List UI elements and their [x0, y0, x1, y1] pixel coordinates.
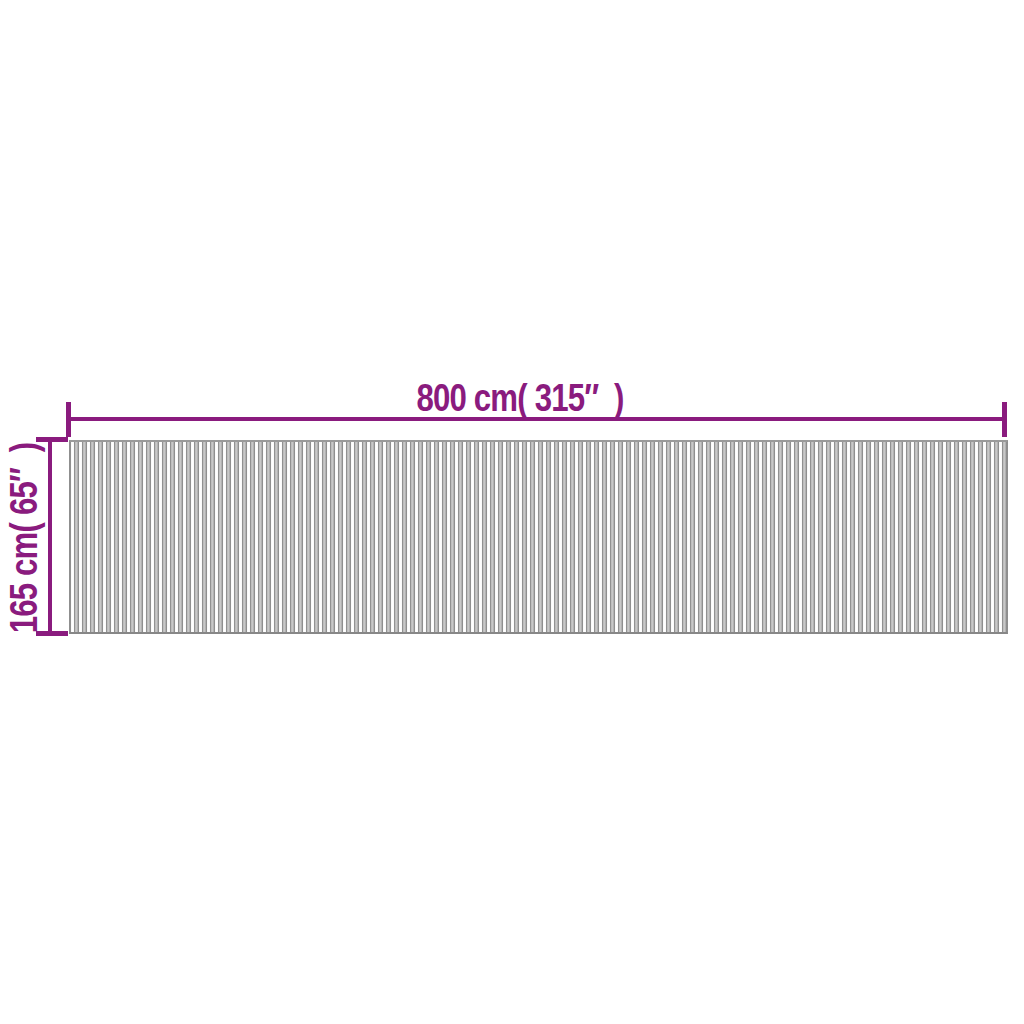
width-dimension-tick-right — [1002, 402, 1007, 437]
striped-mat-graphic — [69, 440, 1008, 634]
width-dimension-label: 800 cm( 315″ ) — [416, 379, 623, 417]
product-dimension-diagram: 800 cm( 315″ ) 165 cm( 65″ ) — [0, 0, 1024, 1024]
height-dimension-label: 165 cm( 65″ ) — [5, 443, 43, 634]
height-dimension-line — [48, 438, 52, 634]
width-dimension-tick-left — [66, 402, 71, 437]
height-dimension-tick-top — [36, 437, 68, 442]
